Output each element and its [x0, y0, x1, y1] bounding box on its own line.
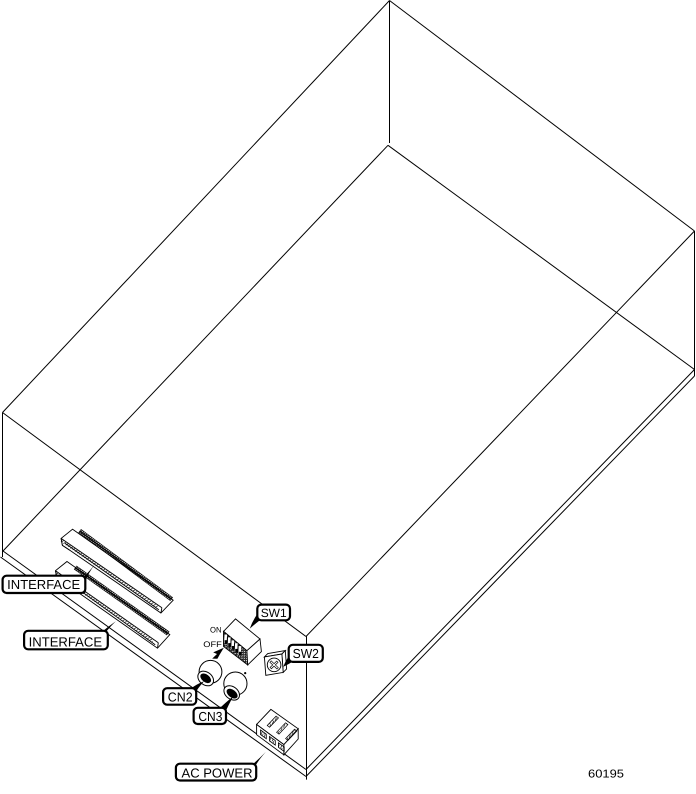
svg-text:60195: 60195 [588, 768, 624, 780]
svg-text:AC POWER: AC POWER [182, 766, 253, 781]
svg-text:ON: ON [210, 625, 222, 634]
svg-text:SW1: SW1 [261, 606, 287, 620]
svg-text:CN2: CN2 [168, 690, 193, 705]
svg-text:CN3: CN3 [198, 709, 222, 724]
svg-text:OFF: OFF [203, 640, 222, 649]
svg-text:SW2: SW2 [293, 646, 319, 661]
svg-text:INTERFACE: INTERFACE [7, 577, 80, 592]
svg-text:INTERFACE: INTERFACE [29, 634, 103, 649]
